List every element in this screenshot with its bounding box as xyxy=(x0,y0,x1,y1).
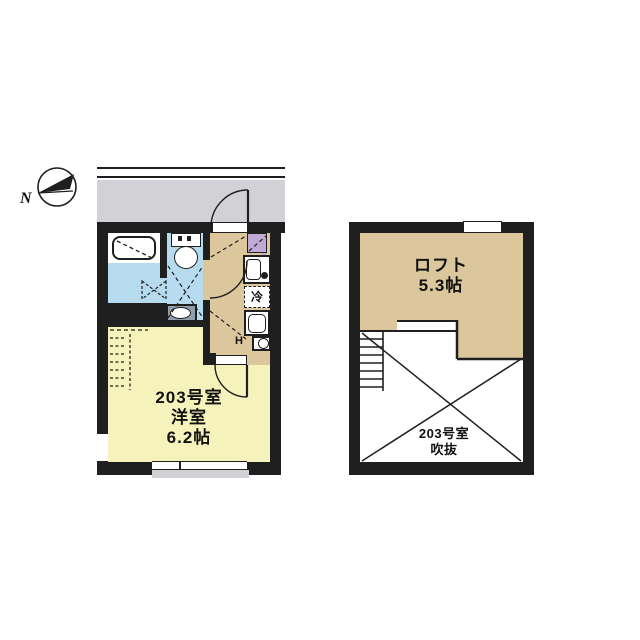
loft-outer-wall-right xyxy=(523,222,534,475)
void-room-number-label: 203号室 xyxy=(384,426,504,442)
loft-outer-wall-top xyxy=(349,222,534,233)
corridor-edge-line-inner xyxy=(97,176,285,178)
kitchen-sink-bowl xyxy=(246,259,261,280)
compass-circle xyxy=(38,168,76,206)
washer-drain-circle xyxy=(258,338,269,349)
toilet-bowl xyxy=(174,246,198,269)
corridor-edge-line-outer xyxy=(97,167,285,169)
loft-name-label: ロフト xyxy=(381,256,501,276)
plan-line-overlay xyxy=(0,0,640,640)
loft-size-label: 5.3帖 xyxy=(381,276,501,296)
left-wall-window xyxy=(97,433,108,462)
water-heater-label: H xyxy=(232,335,246,347)
void-label: 吹抜 xyxy=(384,442,504,458)
main-room-label: 203号室 洋室 6.2帖 xyxy=(109,388,269,448)
north-label: N xyxy=(20,190,38,208)
bathroom-bottom-wall xyxy=(108,303,167,327)
bath-washroom-divider-wall xyxy=(160,233,167,278)
loft-outer-wall-left xyxy=(349,222,360,475)
compass-needle xyxy=(38,174,74,193)
kitchen-faucet xyxy=(261,272,268,279)
bottom-wall-window xyxy=(152,461,247,470)
corridor-area xyxy=(97,180,285,222)
refrigerator-label: 冷 xyxy=(244,286,270,308)
compass-needle-base xyxy=(38,191,73,193)
shoe-closet xyxy=(247,233,267,253)
outer-wall-top-left-segment xyxy=(97,222,212,233)
void-label-group: 203号室 吹抜 xyxy=(384,426,504,457)
room-number-label: 203号室 xyxy=(109,388,269,408)
room-type-label: 洋室 xyxy=(109,408,269,428)
bathtub xyxy=(112,236,156,260)
wash-basin-bowl xyxy=(170,307,191,319)
room-size-label: 6.2帖 xyxy=(109,428,269,448)
loft-top-window xyxy=(463,221,502,233)
loft-edge-step-band xyxy=(397,322,457,331)
washing-machine-drum xyxy=(248,314,266,333)
loft-floor-extension xyxy=(457,331,523,359)
washroom-hall-wall-upper xyxy=(203,233,210,260)
floorplan-canvas: 冷 H xyxy=(0,0,640,640)
loft-outer-wall-bottom xyxy=(349,462,534,475)
toilet-tank xyxy=(171,233,201,247)
bathroom-floor xyxy=(108,263,160,303)
entrance-door-threshold xyxy=(212,222,248,233)
toilet-button-right xyxy=(187,236,191,241)
loft-label: ロフト 5.3帖 xyxy=(381,256,501,296)
bottom-window-sill xyxy=(152,470,249,478)
toilet-button-left xyxy=(178,236,182,241)
outer-wall-right xyxy=(270,222,281,475)
room-door-threshold xyxy=(215,355,247,365)
